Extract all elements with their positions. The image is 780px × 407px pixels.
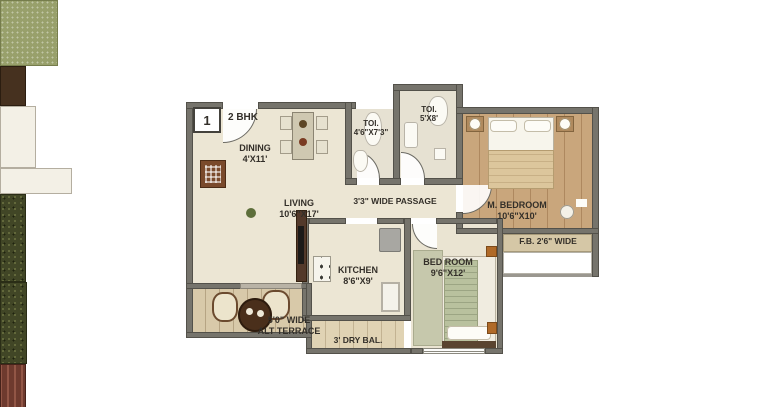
living-name: LIVING xyxy=(284,198,314,208)
terrace-sliding-door xyxy=(240,283,302,289)
wall-toilet-large-top xyxy=(393,84,463,91)
flower-bed-label: F.B. 2'6" WIDE xyxy=(506,237,590,247)
master-wardrobe xyxy=(0,364,26,407)
kitchen-label: KITCHEN 8'6"X9' xyxy=(330,255,386,296)
wall-toilet-bottom-c xyxy=(424,178,463,185)
wall-toilet-bottom-a xyxy=(345,178,357,185)
toilet-large-label: TOI. 5'X8' xyxy=(404,96,454,133)
coffee-table xyxy=(0,66,26,106)
wall-kitchen-top-right xyxy=(377,218,404,224)
living-label: LIVING 10'6"X17' xyxy=(266,188,332,229)
bedroom-name: BED ROOM xyxy=(423,257,473,267)
toilet-small-name: TOI. xyxy=(363,119,378,128)
desk-chair xyxy=(560,205,574,219)
wall-dry-balcony-bottom xyxy=(306,348,411,354)
wall-bedroom-right xyxy=(497,218,503,354)
dining-table-plate xyxy=(299,138,307,146)
kitchen-name: KITCHEN xyxy=(338,265,378,275)
bedroom-window xyxy=(423,348,485,354)
wall-bedroom-bottom-right xyxy=(485,348,503,354)
wall-bedroom-bottom-left xyxy=(411,348,423,354)
terrace-label-line2: ALT TERRACE xyxy=(236,326,342,336)
terrace-label-line1: 5'0" WIDE xyxy=(268,315,310,325)
bedroom-label: BED ROOM 9'6"X12' xyxy=(406,247,490,288)
wall-toilet-divider xyxy=(393,84,400,185)
kitchen-counter-left xyxy=(0,194,26,282)
wall-toilet-large-right xyxy=(456,84,463,185)
dining-table-plate xyxy=(299,120,307,128)
refrigerator xyxy=(379,228,401,252)
bedroom-pillow xyxy=(447,326,491,340)
sofa xyxy=(0,106,36,168)
toilet-small-label: TOI. 4'6"X7'3" xyxy=(348,110,394,147)
master-bedroom-label: M. BEDROOM 10'6"X10' xyxy=(476,190,558,231)
dining-name: DINING xyxy=(239,143,271,153)
dining-chair xyxy=(316,116,328,130)
living-size: 10'6"X17' xyxy=(266,209,332,219)
kitchen-size: 8'6"X9' xyxy=(330,276,386,286)
dining-chair xyxy=(316,140,328,154)
dining-size: 4'X11' xyxy=(225,154,285,164)
bedroom-side-table xyxy=(487,322,497,334)
bedside-lamp xyxy=(559,118,571,130)
stove xyxy=(313,256,331,282)
desk-papers xyxy=(576,199,587,207)
floor-plan: 1 2 BHK DINING 4'X11' LIVING 10'6"X17' T… xyxy=(0,0,780,407)
master-bedroom-size: 10'6"X10' xyxy=(476,211,558,221)
toilet-small-wc xyxy=(353,150,368,172)
wall-master-top xyxy=(456,107,599,114)
flat-number-badge: 1 xyxy=(193,107,221,133)
bedroom-headboard xyxy=(442,341,496,348)
wall-master-right xyxy=(592,107,599,277)
coffee-table-plant xyxy=(246,208,256,218)
master-bedroom-name: M. BEDROOM xyxy=(487,200,547,210)
kitchen-counter-right xyxy=(0,282,27,364)
toilet-large-size: 5'X8' xyxy=(404,114,454,123)
master-bed-blanket xyxy=(488,150,554,189)
tv-screen xyxy=(298,226,304,264)
terrace-chair xyxy=(212,292,238,322)
dining-chair xyxy=(280,116,292,130)
living-rug xyxy=(0,0,58,66)
sofa-chaise xyxy=(0,168,72,194)
bedroom-size: 9'6"X12' xyxy=(406,268,490,278)
toilet-large-name: TOI. xyxy=(421,105,436,114)
flower-bed-open-strip xyxy=(503,252,592,274)
toilet-small-size: 4'6"X7'3" xyxy=(348,128,394,137)
toilet-floor-drain xyxy=(434,148,446,160)
wall-top-living xyxy=(258,102,356,109)
lattice-cabinet xyxy=(200,160,226,188)
unit-type-label: 2 BHK xyxy=(228,112,276,124)
pillow xyxy=(490,120,517,132)
pillow xyxy=(524,120,551,132)
bedside-lamp xyxy=(469,118,481,130)
wall-toilet-bottom-b xyxy=(379,178,401,185)
passage-label: 3'3" WIDE PASSAGE xyxy=(330,197,460,207)
wall-left-outer xyxy=(186,102,193,338)
dining-label: DINING 4'X11' xyxy=(225,133,285,174)
flat-number: 1 xyxy=(203,113,210,128)
flower-bed-bottom-line xyxy=(503,274,592,277)
terrace-label: 5'0" WIDE ALT TERRACE xyxy=(236,305,342,346)
